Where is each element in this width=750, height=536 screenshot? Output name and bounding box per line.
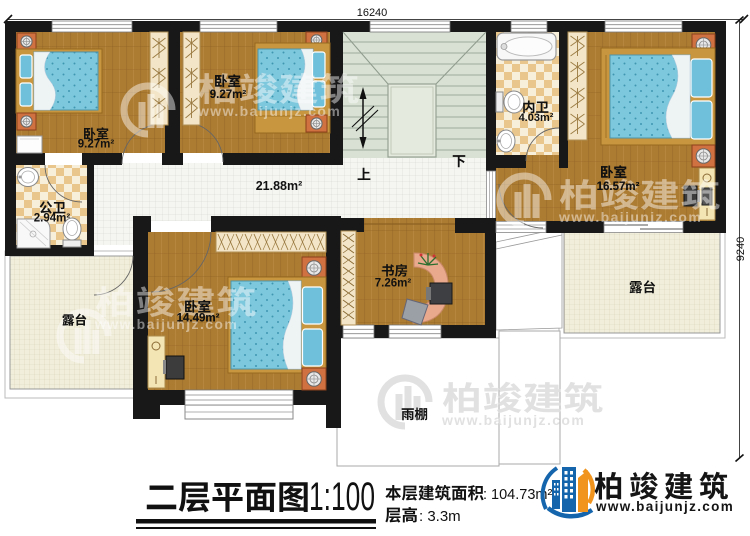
svg-text:16.57m²: 16.57m² [597, 181, 640, 193]
svg-text:14.49m²: 14.49m² [177, 313, 220, 325]
svg-text:www.baijunjz.com: www.baijunjz.com [441, 412, 585, 428]
svg-text:: 3.3m: : 3.3m [419, 508, 461, 525]
svg-text:1:100: 1:100 [309, 475, 375, 519]
svg-text:www.baijunjz.com: www.baijunjz.com [558, 209, 702, 225]
svg-text:9.27m²: 9.27m² [210, 89, 247, 101]
svg-text:4.03m²: 4.03m² [519, 112, 554, 124]
svg-text:9.27m²: 9.27m² [78, 139, 115, 151]
svg-text:www.baijunjz.com: www.baijunjz.com [197, 103, 341, 119]
svg-text:www.baijunjz.com: www.baijunjz.com [595, 499, 734, 514]
svg-text:2.94m²: 2.94m² [34, 213, 71, 225]
svg-text:16240: 16240 [357, 7, 388, 19]
svg-text:7.26m²: 7.26m² [375, 278, 412, 290]
svg-text:9240: 9240 [735, 237, 747, 261]
svg-text:21.88m²: 21.88m² [256, 179, 303, 193]
